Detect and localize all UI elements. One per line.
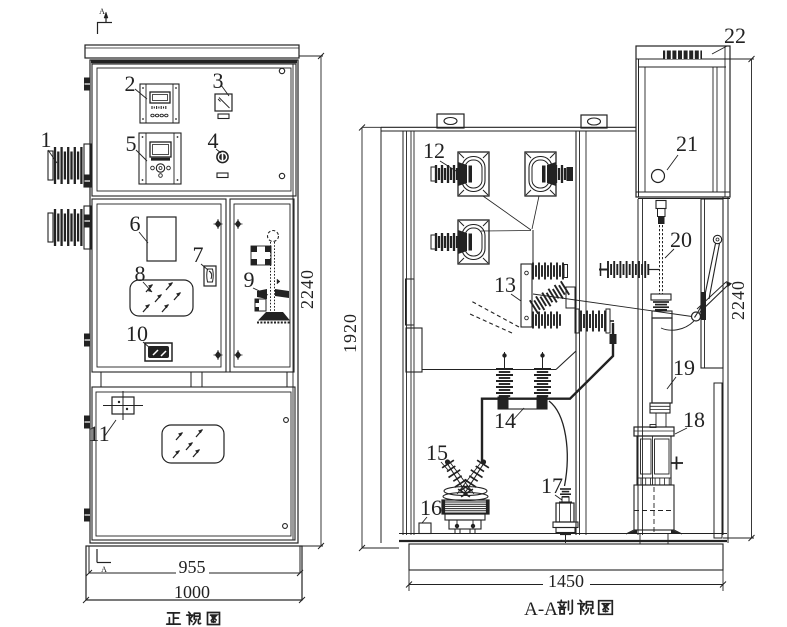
svg-text:A: A — [101, 565, 107, 574]
svg-text:10: 10 — [126, 321, 148, 346]
svg-text:13: 13 — [494, 272, 516, 297]
svg-text:A: A — [99, 7, 105, 16]
svg-text:17: 17 — [541, 473, 563, 498]
svg-text:1: 1 — [41, 127, 52, 152]
svg-text:7: 7 — [193, 242, 204, 267]
svg-text:22: 22 — [724, 23, 746, 48]
svg-text:1920: 1920 — [340, 313, 360, 353]
svg-text:3: 3 — [213, 68, 224, 93]
svg-text:A-A: A-A — [524, 599, 558, 620]
svg-text:21: 21 — [676, 131, 698, 156]
svg-text:1000: 1000 — [174, 582, 210, 602]
svg-text:9: 9 — [244, 267, 255, 292]
svg-text:19: 19 — [673, 355, 695, 380]
svg-text:1450: 1450 — [548, 571, 584, 591]
svg-text:8: 8 — [135, 261, 146, 286]
svg-text:16: 16 — [420, 495, 442, 520]
svg-text:2240: 2240 — [297, 269, 317, 309]
svg-text:20: 20 — [670, 227, 692, 252]
svg-text:2: 2 — [125, 71, 136, 96]
svg-text:5: 5 — [126, 131, 137, 156]
svg-text:955: 955 — [179, 557, 206, 577]
svg-text:2240: 2240 — [728, 280, 748, 320]
svg-text:12: 12 — [423, 138, 445, 163]
svg-text:15: 15 — [426, 440, 448, 465]
